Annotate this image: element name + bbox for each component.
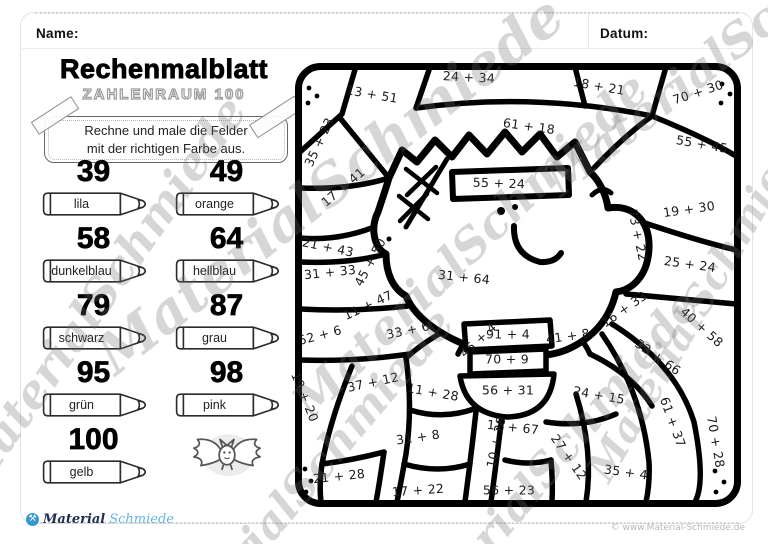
math-problem: 31 + 64 (437, 267, 491, 287)
legend-color-label: grau (179, 324, 251, 352)
math-problem: 55 + 45 (675, 132, 729, 156)
date-field-label: Datum: (600, 26, 648, 41)
math-problem: 25 + 24 (663, 253, 717, 275)
page-title: Rechenmalblatt (38, 54, 290, 85)
math-problem: 19 + 20 (288, 370, 322, 424)
legend-number: 79 (34, 289, 153, 323)
math-problem: 70 + 30 (671, 77, 725, 107)
math-problem: 73 + 22 (625, 208, 651, 262)
worksheet-page: { "header": { "name_label": "Name:", "da… (0, 0, 768, 544)
logo-text-schmiede: Schmiede (109, 512, 174, 527)
math-problem: 70 + 9 (485, 352, 529, 367)
math-problem: 31 + 8 (395, 427, 441, 448)
math-problem: 40 + 58 (678, 304, 727, 350)
math-problem: 18 + 21 (572, 74, 626, 98)
math-problem: 70 + 28 (704, 415, 728, 469)
pencil-icon: dunkelblau (38, 257, 150, 285)
legend-number: 58 (34, 222, 153, 256)
footer-logo: ⚒ MaterialSchmiede (26, 512, 174, 527)
logo-text-material: Material (43, 512, 105, 527)
legend-item-lila: 39lila (34, 155, 153, 221)
math-problem: 11 + 28 (406, 380, 460, 404)
legend-number: 39 (34, 155, 153, 189)
math-problem: 56 + 23 (483, 483, 535, 498)
name-field-label: Name: (36, 26, 79, 41)
legend-number: 98 (167, 356, 286, 390)
math-problem: 21 + 43 (301, 234, 355, 260)
math-problem: 33 + 6 (385, 318, 431, 342)
page-subtitle: Zahlenraum 100 (38, 86, 290, 103)
legend-color-label: gelb (46, 458, 118, 486)
math-problem: 35 + 23 (301, 115, 337, 169)
math-problem: 52 + 6 (297, 322, 343, 348)
math-problem: 24 + 15 (572, 383, 626, 407)
math-problem: 13 + 51 (345, 82, 399, 106)
problems-layer: 13 + 5124 + 3418 + 2170 + 3035 + 2361 + … (294, 62, 742, 508)
bat-illustration (183, 429, 271, 483)
math-problem: 21 + 28 (312, 466, 366, 486)
pencil-icon: hellblau (171, 257, 283, 285)
legend-color-label: grün (46, 391, 118, 419)
legend-item-pink: 98pink (167, 356, 286, 422)
math-problem: 24 + 34 (442, 68, 495, 86)
legend-color-label: schwarz (46, 324, 118, 352)
legend-item-grün: 95grün (34, 356, 153, 422)
math-problem: 17 + 41 (318, 164, 368, 209)
math-problem: 45 + 50 (351, 235, 389, 288)
pencil-icon: pink (171, 391, 283, 419)
legend-number: 87 (167, 289, 286, 323)
legend-item-grau: 87grau (167, 289, 286, 355)
legend-number: 64 (167, 222, 286, 256)
legend-number: 49 (167, 155, 286, 189)
copyright-text: © www.Material-Schmiede.de (611, 523, 745, 533)
math-problem: 61 + 37 (657, 395, 689, 449)
pencil-icon: orange (171, 190, 283, 218)
math-problem: 17 + 22 (391, 481, 444, 500)
math-problem: 16 + 33 (598, 288, 649, 330)
math-problem: 61 + 18 (502, 115, 556, 137)
logo-icon: ⚒ (26, 513, 39, 526)
color-legend: 39lila49orange58dunkelblau64hellblau79sc… (34, 155, 286, 489)
legend-item-orange: 49orange (167, 155, 286, 221)
math-problem: 37 + 12 (346, 369, 400, 395)
legend-number: 100 (34, 423, 153, 457)
header-divider-vertical (588, 14, 589, 48)
math-problem: 11 + 47 (341, 287, 395, 323)
legend-item-gelb: 100gelb (34, 423, 153, 489)
pencil-icon: grün (38, 391, 150, 419)
coloring-picture: 13 + 5124 + 3418 + 2170 + 3035 + 2361 + … (294, 62, 742, 508)
math-problem: 31 + 33 (303, 262, 357, 282)
math-problem: 19 + 30 (662, 198, 716, 220)
legend-color-label: dunkelblau (46, 257, 118, 285)
pencil-icon: lila (38, 190, 150, 218)
legend-item-schwarz: 79schwarz (34, 289, 153, 355)
pencil-icon: gelb (38, 458, 150, 486)
legend-color-label: lila (46, 190, 118, 218)
header-divider-horizontal (22, 48, 751, 49)
math-problem: 91 + 4 (486, 327, 530, 342)
pencil-icon: grau (171, 324, 283, 352)
legend-number: 95 (34, 356, 153, 390)
math-problem: 56 + 31 (482, 383, 534, 398)
bat-cell (167, 423, 286, 489)
pencil-icon: schwarz (38, 324, 150, 352)
math-problem: 27 + 12 (548, 431, 590, 482)
math-problem: 41 + 8 (545, 326, 591, 347)
legend-color-label: pink (179, 391, 251, 419)
legend-item-hellblau: 64hellblau (167, 222, 286, 288)
math-problem: 35 + 4 (603, 462, 649, 483)
legend-color-label: hellblau (179, 257, 251, 285)
title-block: Rechenmalblatt Zahlenraum 100 (38, 54, 290, 103)
math-problem: 32 + 66 (632, 336, 683, 378)
math-problem: 55 + 24 (473, 175, 526, 192)
legend-color-label: orange (179, 190, 251, 218)
legend-item-dunkelblau: 58dunkelblau (34, 222, 153, 288)
